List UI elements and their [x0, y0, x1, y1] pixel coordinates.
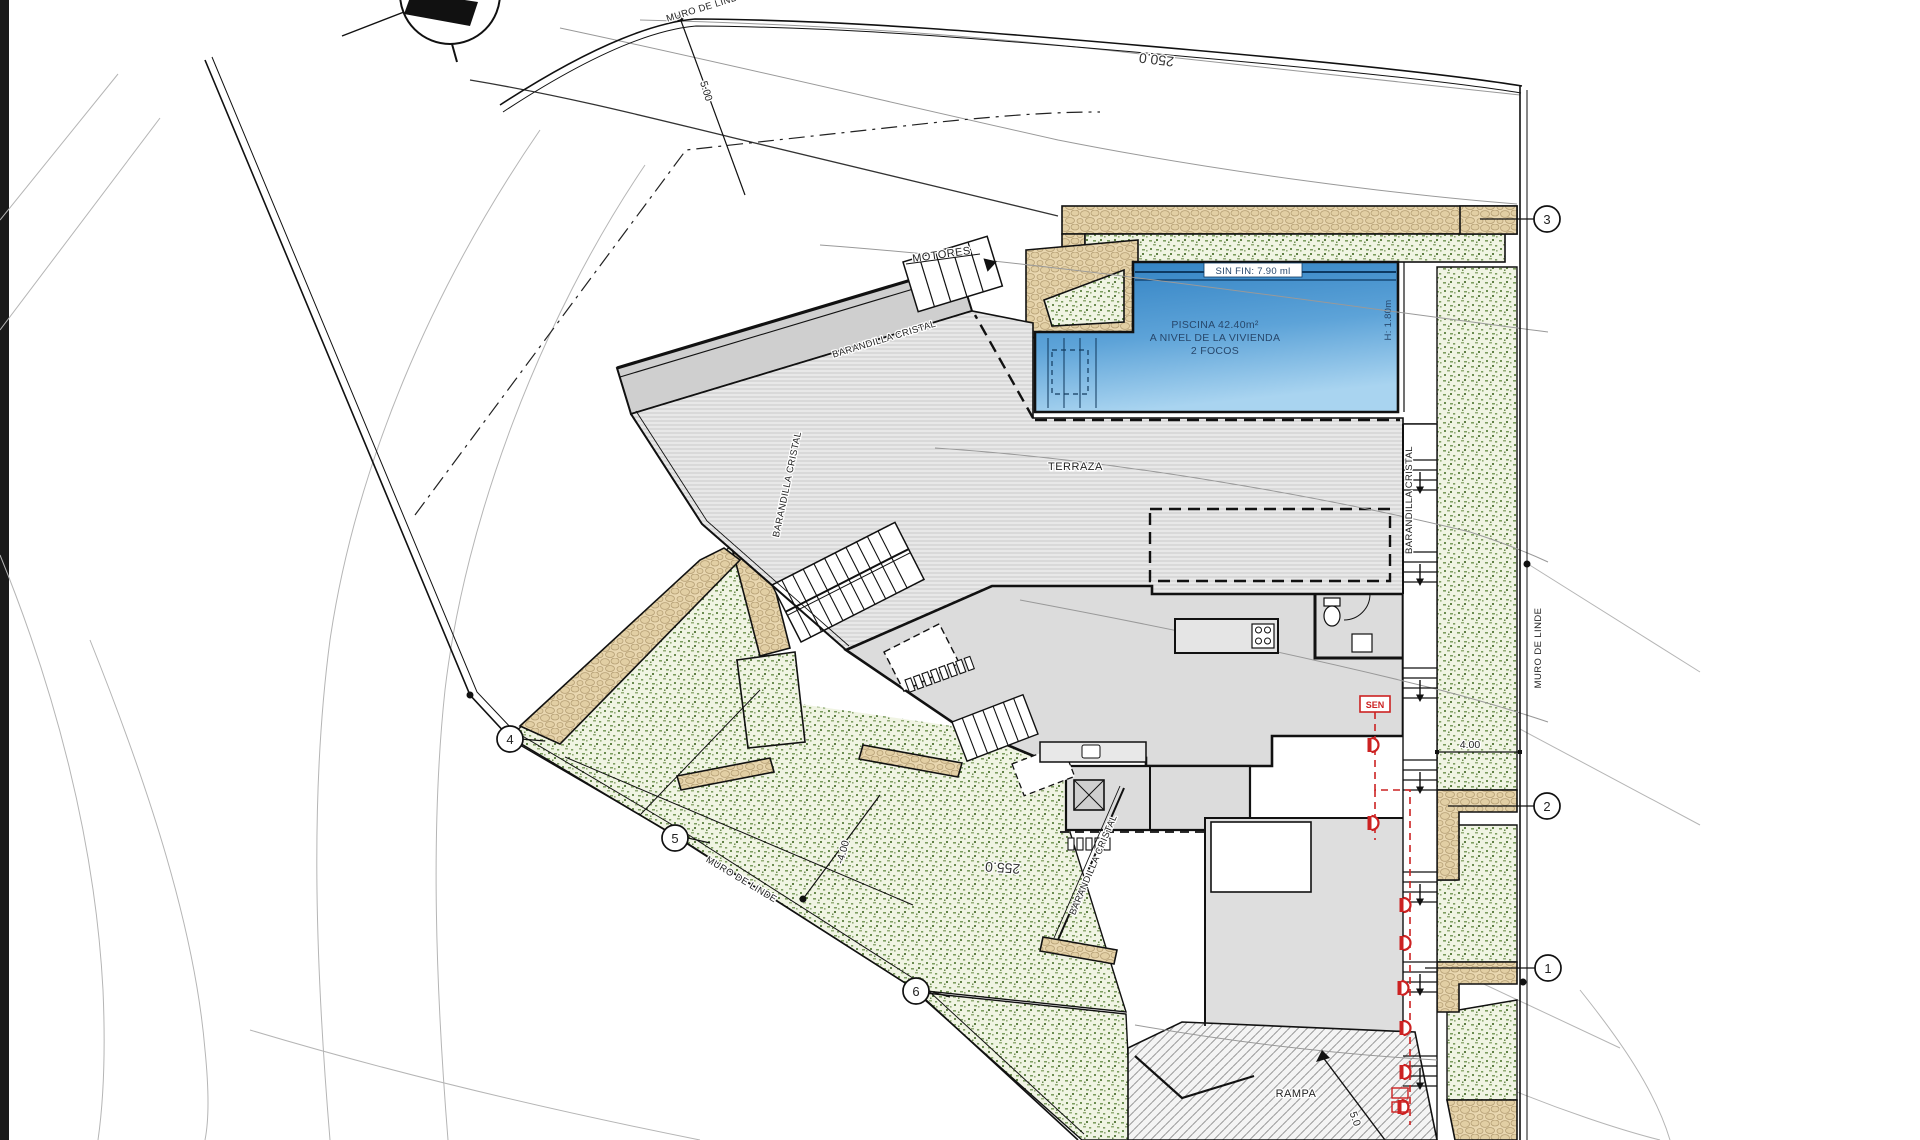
viewport-edge: [0, 0, 9, 1140]
marker-1: 1: [1535, 955, 1561, 981]
svg-text:4: 4: [506, 732, 513, 747]
svg-text:5: 5: [671, 831, 678, 846]
pool-label-line3: 2 FOCOS: [1191, 345, 1239, 357]
contour-255-label: 255.0: [984, 859, 1020, 877]
marker-3: 3: [1534, 206, 1560, 232]
pool-label-line2: A NIVEL DE LA VIVIENDA: [1150, 332, 1281, 344]
terraza-label: TERRAZA: [1048, 461, 1103, 473]
svg-text:2: 2: [1543, 799, 1550, 814]
sensor-label: SEN: [1366, 700, 1385, 710]
pool-depth-label: H: 1.80m: [1383, 300, 1394, 341]
svg-text:1: 1: [1544, 961, 1551, 976]
pool-label-line1: PISCINA 42.40m²: [1171, 319, 1259, 331]
toilet: [1324, 606, 1340, 626]
marker-4: 4: [497, 726, 523, 752]
svg-text:3: 3: [1543, 212, 1550, 227]
rampa-label: RAMPA: [1276, 1088, 1317, 1100]
marker-2: 2: [1534, 793, 1560, 819]
site-plan-drawing: SIN FIN: 7.90 ml PISCINA 42.40m² A NIVEL…: [0, 0, 1920, 1140]
svg-text:6: 6: [912, 984, 919, 999]
marker-6: 6: [903, 978, 929, 1004]
counter-sink: [1082, 745, 1100, 758]
pool-edge-label: SIN FIN: 7.90 ml: [1215, 266, 1290, 277]
marker-5: 5: [662, 825, 688, 851]
bath-sink: [1352, 634, 1372, 652]
cooktop: [1252, 624, 1274, 648]
dim-right: 4.00: [1460, 739, 1481, 751]
ramp-area: [1128, 1022, 1437, 1140]
railing-label-3: BARANDILLA CRISTAL: [1404, 446, 1415, 554]
boundary-label-right: MURO DE LINDE: [1533, 608, 1544, 689]
